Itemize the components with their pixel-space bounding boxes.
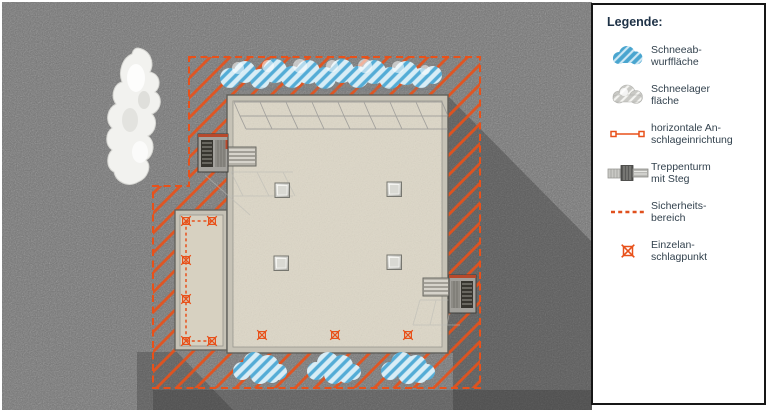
legend-item-safety-zone: Sicherheits- bereich (605, 199, 756, 225)
legend-panel: Legende: Schneeab- wurffläche (591, 3, 766, 405)
legend-item-single-anchor: Einzelan- schlagpunkt (605, 238, 756, 264)
roof-safety-plan: Legende: Schneeab- wurffläche (0, 0, 769, 412)
legend-item-horizontal-anchor: horizontale An- schlageinrichtung (605, 121, 756, 147)
legend-item-snow-storage: Schneelager fläche (605, 82, 756, 108)
legend-item-label: Schneelager fläche (651, 83, 710, 108)
horizontal-anchor-icon (605, 128, 651, 140)
legend-item-label: Einzelan- schlagpunkt (651, 239, 707, 264)
snow-dump-area-icon (605, 45, 651, 67)
legend-item-label: Schneeab- wurffläche (651, 44, 702, 69)
legend-title: Legende: (607, 15, 756, 29)
legend-item-label: Treppenturm mit Steg (651, 161, 711, 186)
legend-item-snow-dump: Schneeab- wurffläche (605, 43, 756, 69)
legend-item-label: horizontale An- schlageinrichtung (651, 122, 733, 147)
main-building-roof (227, 95, 448, 353)
snow-storage-area-icon (605, 84, 651, 106)
safety-zone-icon (605, 208, 651, 216)
single-anchor-point-icon (605, 243, 651, 259)
legend-item-stair-tower: Treppenturm mit Steg (605, 160, 756, 186)
legend-item-label: Sicherheits- bereich (651, 200, 706, 225)
stair-tower-icon (605, 163, 651, 183)
annex-roof (175, 210, 227, 350)
